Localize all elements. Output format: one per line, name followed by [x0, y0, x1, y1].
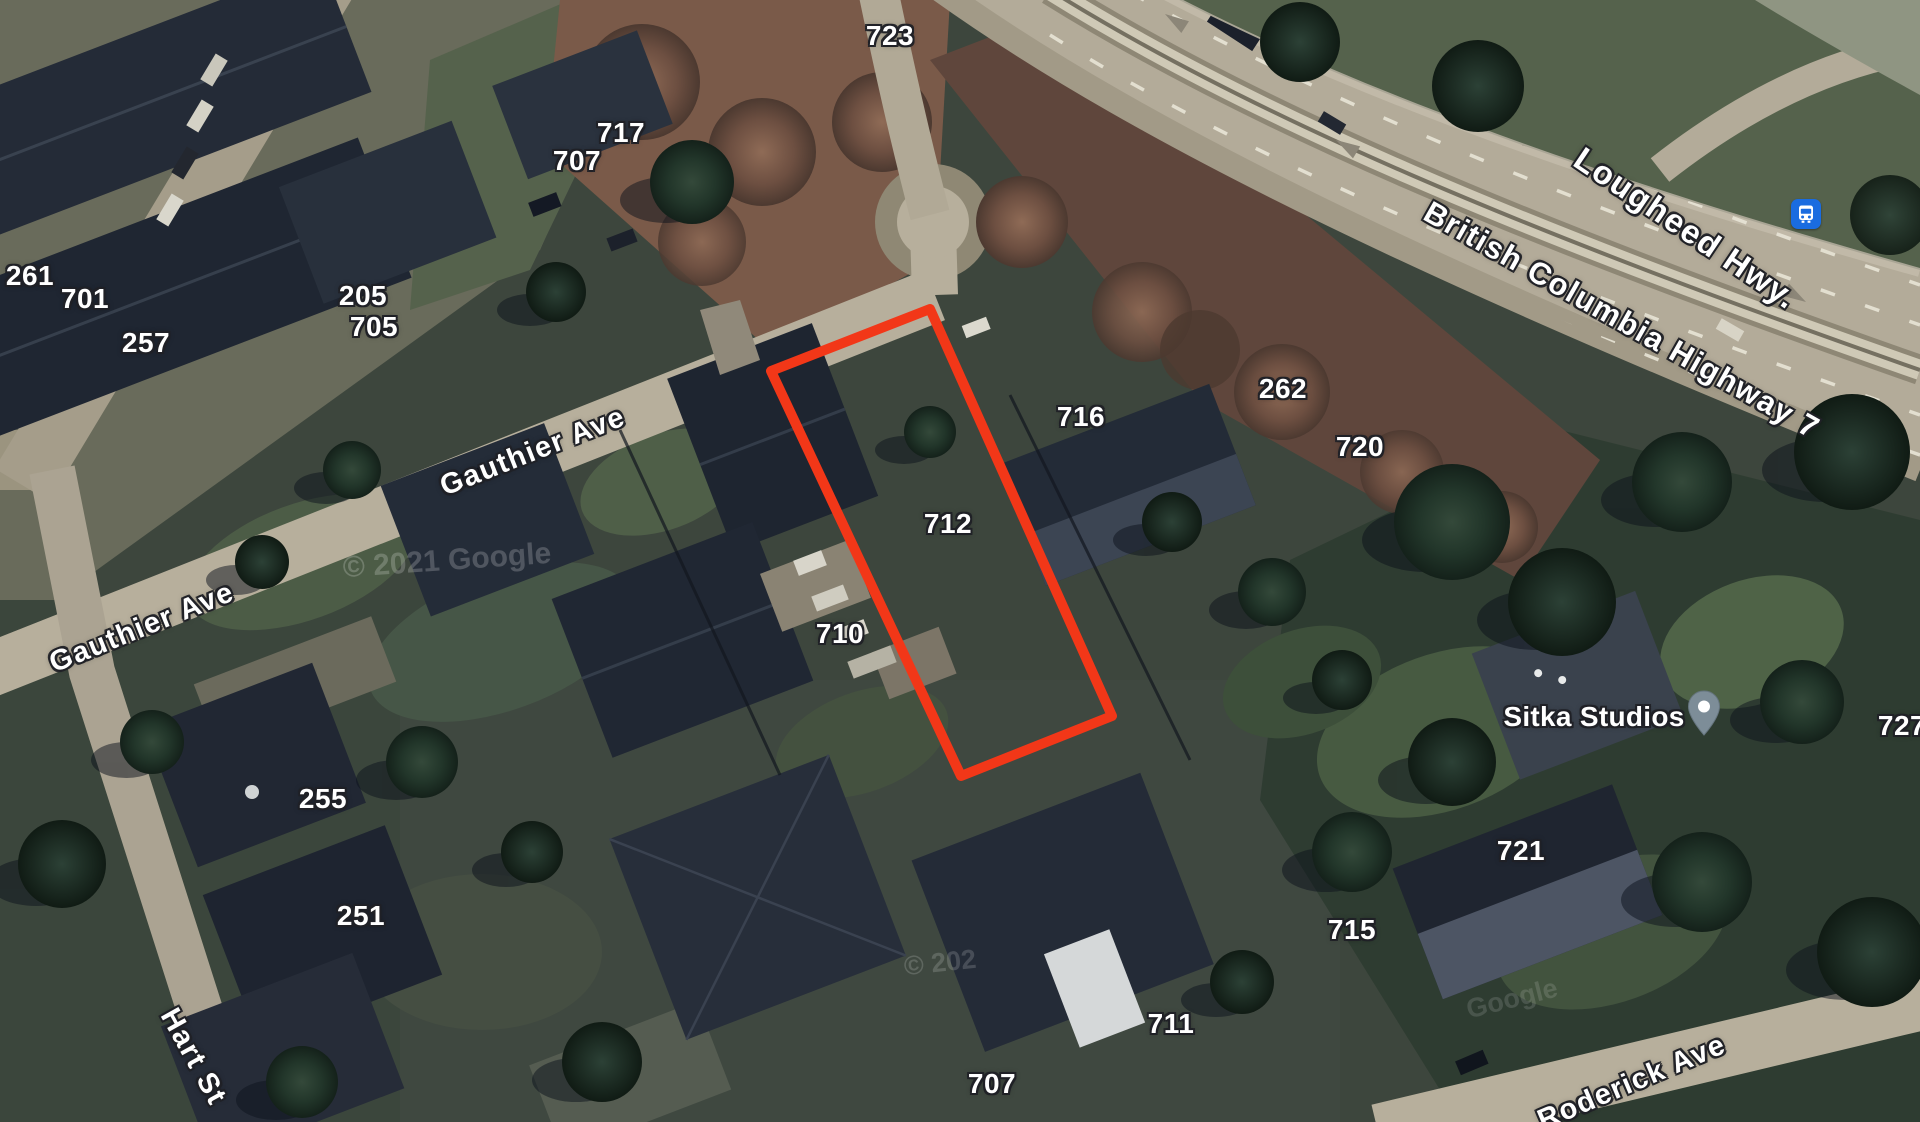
map-watermark: © 202 [902, 944, 977, 982]
bus-glyph [1794, 202, 1818, 226]
map-viewport[interactable]: Sitka Studios 72371770726170125720570571… [0, 0, 1920, 1122]
street-label: British Columbia Highway 7 [1419, 196, 1825, 444]
house-number-label: 716 [1057, 403, 1105, 431]
house-number-label: 701 [61, 285, 109, 313]
house-number-label: 723 [866, 22, 914, 50]
house-number-label: 711 [1148, 1010, 1195, 1038]
house-number-label: 707 [553, 147, 601, 175]
house-number-label: 717 [597, 119, 645, 147]
house-number-label: 261 [6, 262, 54, 290]
house-number-label: 707 [968, 1070, 1016, 1098]
street-label: Gauthier Ave [436, 403, 629, 502]
map-watermark: © 2021 Google [342, 537, 553, 585]
house-number-label: 712 [924, 510, 972, 538]
house-number-label: 710 [816, 620, 864, 648]
house-number-label: 255 [299, 785, 347, 813]
house-number-label: 705 [350, 313, 398, 341]
bus-stop-icon[interactable] [1791, 199, 1821, 229]
map-watermark: Google [1463, 973, 1561, 1026]
house-number-label: 257 [122, 329, 170, 357]
street-label: Hart St [155, 1004, 232, 1110]
street-label: Gauthier Ave [46, 578, 239, 678]
house-number-label: 205 [339, 282, 387, 310]
poi-pin-icon[interactable] [1687, 690, 1721, 736]
house-number-label: 715 [1328, 916, 1376, 944]
house-number-label: 727 [1878, 712, 1920, 740]
house-number-label: 262 [1259, 375, 1307, 403]
street-label: Roderick Ave [1534, 1030, 1731, 1122]
label-layer: Sitka Studios 72371770726170125720570571… [0, 0, 1920, 1122]
poi-label-sitka-studios[interactable]: Sitka Studios [1503, 703, 1684, 731]
house-number-label: 251 [337, 902, 385, 930]
house-number-label: 720 [1336, 433, 1384, 461]
house-number-label: 721 [1497, 837, 1545, 865]
